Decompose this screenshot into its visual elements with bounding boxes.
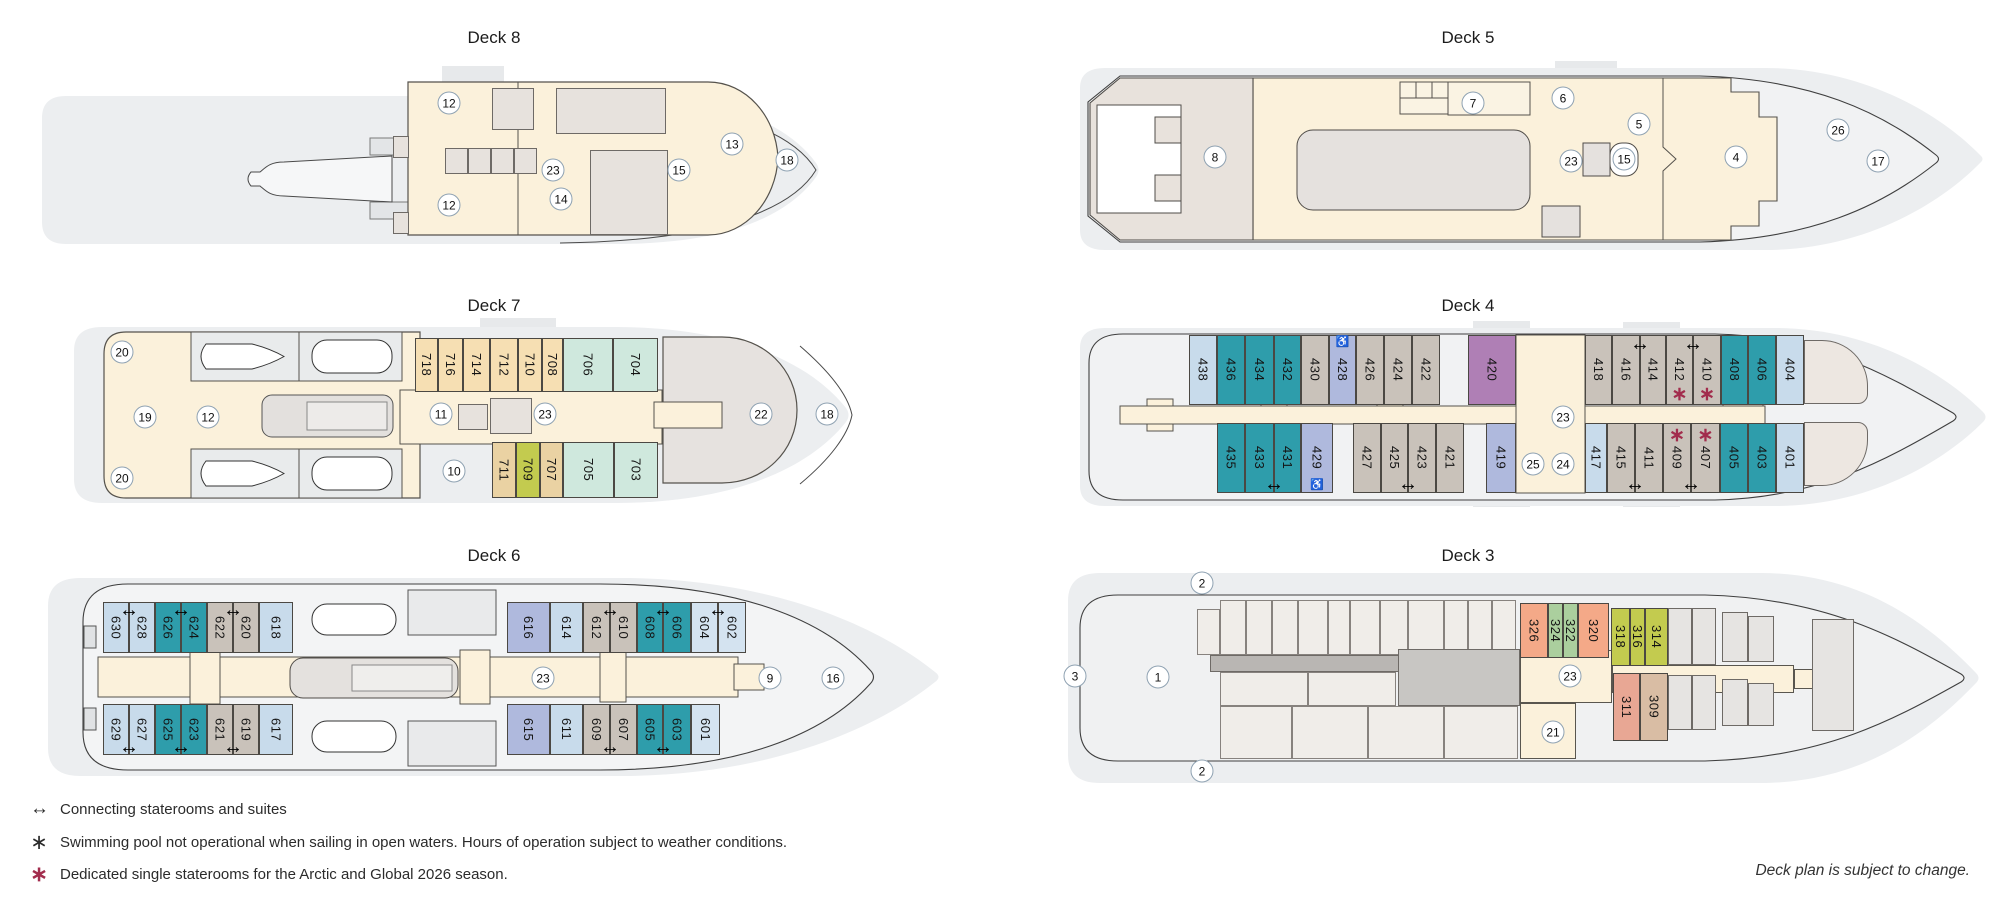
deck-marker: 23 (1552, 406, 1575, 429)
cabin: 436 (1217, 335, 1245, 405)
cabin: 716 (438, 338, 463, 392)
deck-marker: 20 (111, 467, 134, 490)
deck3-room (1368, 706, 1444, 759)
cabin: 422 (1412, 335, 1440, 405)
cabin: 420 (1468, 335, 1516, 405)
cabin: 401 (1776, 423, 1804, 493)
deck3-room (1468, 600, 1492, 655)
cabin: 426 (1356, 335, 1384, 405)
connecting-icon: ↔ (119, 737, 139, 757)
deck3-room (1692, 675, 1716, 730)
deck-5-plan: 8 7 6 5 23 15 4 26 17 (1075, 55, 2000, 255)
deck-marker: 10 (443, 460, 466, 483)
deck3-room (1328, 600, 1350, 655)
cabin: 616 (507, 602, 550, 653)
cabin: 615 (507, 704, 550, 755)
connecting-icon: ↔ (223, 737, 243, 757)
deck8-room (393, 212, 409, 234)
deck-title: Deck 4 (1358, 296, 1578, 316)
legend-single: ∗ Dedicated single staterooms for the Ar… (30, 862, 508, 887)
deck3-room (1398, 649, 1520, 706)
cabin: 711 (492, 442, 516, 498)
deck3-room (1722, 612, 1748, 662)
deck-marker: 14 (550, 188, 573, 211)
deck-marker: 26 (1827, 119, 1850, 142)
connecting-icon: ↔ (1630, 334, 1650, 354)
legend-pool: ∗ Swimming pool not operational when sai… (30, 830, 787, 855)
deck7-room (490, 398, 532, 434)
deck3-room (1444, 600, 1468, 655)
deck-marker: 25 (1522, 453, 1545, 476)
deck8-room (556, 88, 666, 134)
deck-plan-note: Deck plan is subject to change. (1755, 862, 1970, 880)
deck-title: Deck 5 (1358, 28, 1578, 48)
cabin: 617 (259, 704, 293, 755)
deck-marker: 3 (1064, 665, 1087, 688)
connecting-icon: ↔ (1264, 474, 1284, 494)
deck-marker: 2 (1191, 760, 1214, 783)
deck-marker: 12 (438, 92, 461, 115)
single-stateroom-icon: ∗ (1698, 428, 1714, 443)
deck-marker: 1 (1147, 666, 1170, 689)
cabin: 427 (1353, 423, 1381, 493)
legend-pool-label: Swimming pool not operational when saili… (60, 834, 787, 851)
connecting-icon: ↔ (30, 798, 48, 820)
deck3-room (1246, 600, 1272, 655)
single-stateroom-asterisk-icon: ∗ (30, 862, 48, 887)
connecting-icon: ↔ (708, 600, 728, 620)
deck8-room (468, 148, 491, 174)
deck3-room (1668, 675, 1692, 730)
deck-marker: 16 (822, 667, 845, 690)
cabin: 424 (1384, 335, 1412, 405)
cabin: 707 (540, 442, 563, 498)
deck-plan-canvas: Deck 8 Deck 7 Deck 6 Deck 5 Deck 4 Deck … (0, 0, 2010, 910)
deck-marker: 13 (721, 133, 744, 156)
connecting-icon: ↔ (1683, 334, 1703, 354)
wheelchair-icon: ♿ (1336, 337, 1350, 348)
cabin: 704 (613, 338, 658, 392)
deck-marker: 24 (1552, 453, 1575, 476)
deck3-room (1692, 608, 1716, 665)
deck-marker: 17 (1867, 150, 1890, 173)
deck-marker: 6 (1552, 87, 1575, 110)
deck8-room (590, 150, 668, 235)
legend-connecting-label: Connecting staterooms and suites (60, 801, 287, 818)
single-stateroom-icon: ∗ (1669, 428, 1685, 443)
legend-single-label: Dedicated single staterooms for the Arct… (60, 866, 508, 883)
single-stateroom-icon: ∗ (1672, 387, 1688, 402)
deck-marker: 7 (1462, 92, 1485, 115)
cabin: 322 (1563, 603, 1578, 658)
cabin: 418 (1585, 335, 1612, 405)
deck-marker: 4 (1725, 146, 1748, 169)
connecting-icon: ↔ (1681, 474, 1701, 494)
deck3-room (1220, 600, 1246, 655)
cabin: 434 (1245, 335, 1274, 405)
deck8-room (491, 148, 514, 174)
deck-marker: 20 (111, 341, 134, 364)
cabin: 326 (1520, 603, 1548, 658)
wheelchair-icon: ♿ (1310, 480, 1324, 491)
deck3-room (1492, 600, 1516, 655)
deck-marker: 19 (134, 406, 157, 429)
deck3-room (1308, 672, 1396, 706)
deck3-room (1298, 600, 1328, 655)
deck-title: Deck 8 (384, 28, 604, 48)
deck3-room (1220, 706, 1292, 759)
cabin: 708 (542, 338, 563, 392)
deck-marker: 23 (532, 667, 555, 690)
cabin: 432 (1274, 335, 1301, 405)
deck3-room (1380, 600, 1408, 655)
connecting-icon: ↔ (600, 737, 620, 757)
deck3-corridor (1210, 655, 1400, 672)
connecting-icon: ↔ (171, 600, 191, 620)
cabin: 710 (518, 338, 542, 392)
deck-marker: 23 (1559, 665, 1582, 688)
deck3-room (1220, 672, 1308, 706)
cabin: 403 (1748, 423, 1776, 493)
cabin: 314 (1645, 608, 1668, 666)
cabin: 705 (563, 442, 614, 498)
connecting-icon: ↔ (1398, 474, 1418, 494)
pool-asterisk-icon: ∗ (30, 830, 48, 855)
cabin: 718 (415, 338, 438, 392)
deck-marker: 23 (1560, 150, 1583, 173)
legend-connecting: ↔ Connecting staterooms and suites (30, 798, 287, 820)
cabin: 417 (1585, 423, 1607, 493)
deck8-room (492, 88, 534, 130)
deck-marker: 12 (438, 194, 461, 217)
deck-marker: 18 (776, 149, 799, 172)
deck-marker: 15 (1613, 148, 1636, 171)
cabin: 435 (1217, 423, 1245, 493)
deck3-room (1748, 616, 1774, 662)
cabin: 430 (1301, 335, 1329, 405)
cabin: 618 (259, 602, 293, 653)
connecting-icon: ↔ (600, 600, 620, 620)
connecting-icon: ↔ (653, 600, 673, 620)
deck-marker: 22 (750, 403, 773, 426)
deck-marker: 8 (1204, 146, 1227, 169)
cabin: 324 (1548, 603, 1563, 658)
cabin: 318 (1611, 608, 1630, 666)
deck3-room (1444, 706, 1518, 759)
deck3-room (1748, 683, 1774, 726)
cabin: 438 (1189, 335, 1217, 405)
deck3-room (1350, 600, 1380, 655)
cabin: 601 (691, 704, 720, 755)
deck-marker: 5 (1628, 113, 1651, 136)
cabin: 404 (1776, 335, 1804, 405)
deck-8-plan: 12 12 23 14 15 13 18 (30, 60, 845, 260)
cabin: 309 (1640, 673, 1668, 741)
deck-marker: 15 (668, 159, 691, 182)
deck-marker: 2 (1191, 572, 1214, 595)
deck-marker: 23 (534, 403, 557, 426)
deck-marker: 9 (759, 667, 782, 690)
cabin: 419 (1486, 423, 1516, 493)
cabin: 714 (463, 338, 490, 392)
deck3-room (1812, 619, 1854, 731)
cabin: 703 (614, 442, 658, 498)
deck-marker: 21 (1542, 721, 1565, 744)
cabin: 311 (1613, 673, 1640, 741)
cabin: 614 (550, 602, 583, 653)
deck-marker: 11 (430, 403, 453, 426)
deck3-room (1292, 706, 1368, 759)
cabin: 316 (1630, 608, 1645, 666)
cabin: 421 (1436, 423, 1464, 493)
cabin: 429♿ (1301, 423, 1333, 493)
cabin: 706 (563, 338, 613, 392)
deck-3-plan: 326 324 322 320 318 316 314 311 309 2 3 … (1060, 545, 2000, 790)
deck-6-plan: 630 628 626 624 622 620 618 616 614 612 … (40, 540, 950, 780)
deck-marker: 18 (816, 403, 839, 426)
deck-7-plan: 718 716 714 712 710 708 706 704 711 709 … (60, 290, 860, 515)
deck3-room (1722, 679, 1748, 726)
deck-4-plan: 438 436 434 432 430 ♿428 426 424 422 420… (1075, 320, 2000, 515)
connecting-icon: ↔ (1625, 474, 1645, 494)
single-stateroom-icon: ∗ (1699, 387, 1715, 402)
connecting-icon: ↔ (119, 600, 139, 620)
deck-7-hull (60, 290, 860, 515)
deck8-room (514, 148, 537, 174)
connecting-icon: ↔ (653, 737, 673, 757)
cabin: 611 (550, 704, 583, 755)
cabin: 408 (1721, 335, 1748, 405)
deck7-room (458, 404, 488, 430)
cabin: 709 (516, 442, 540, 498)
cabin: 712 (490, 338, 518, 392)
connecting-icon: ↔ (171, 737, 191, 757)
deck8-room (445, 148, 468, 174)
cabin: 406 (1748, 335, 1776, 405)
deck3-room (1668, 608, 1692, 665)
deck3-room (1272, 600, 1298, 655)
connecting-icon: ↔ (223, 600, 243, 620)
cabin: 405 (1720, 423, 1748, 493)
deck-marker: 23 (542, 159, 565, 182)
deck-8-hull (30, 60, 845, 260)
deck-marker: 12 (197, 406, 220, 429)
deck8-room (393, 136, 409, 158)
cabin: 320 (1578, 603, 1609, 658)
cabin: ♿428 (1329, 335, 1356, 405)
deck3-room (1197, 609, 1220, 655)
